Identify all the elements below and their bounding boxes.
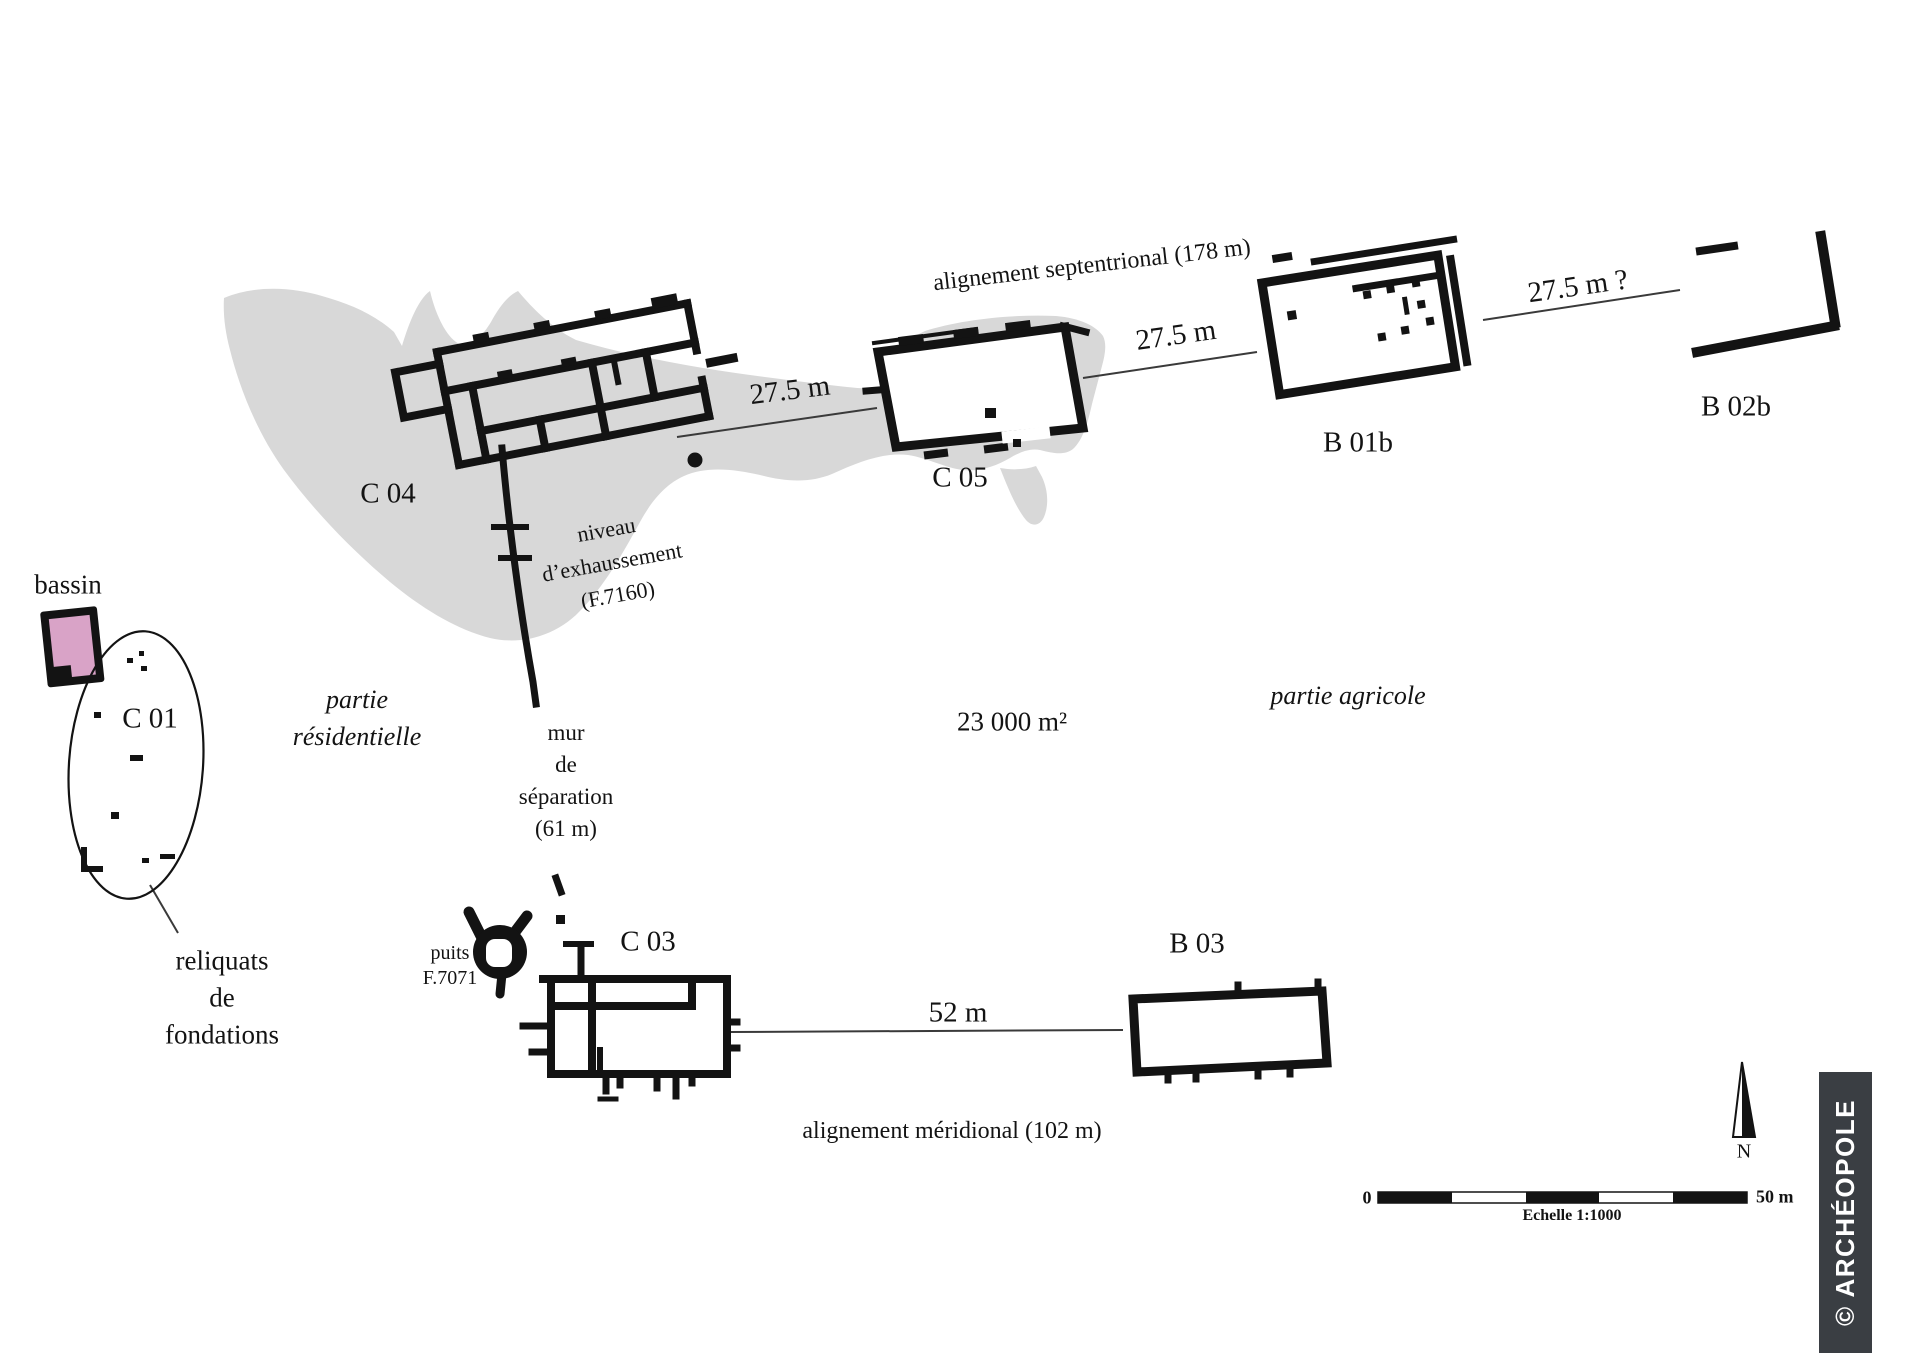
label-basin: bassin [34, 569, 102, 600]
survey-point-dot [688, 453, 703, 468]
label-foundation-remnants: reliquats de fondations [165, 943, 279, 1054]
building-b01b-walls [1258, 227, 1473, 395]
label-compass-north: N [1737, 1141, 1751, 1164]
scale-bar-start-label: 0 [1363, 1188, 1372, 1209]
b01b-pillar-bases [1272, 232, 1436, 356]
alignment-line-c05-b01b [1083, 352, 1257, 378]
label-building-c04: C 04 [360, 477, 416, 510]
scale-bar-end-label: 50 m [1756, 1187, 1794, 1208]
label-building-b03: B 03 [1169, 927, 1225, 960]
label-building-b02b: B 02b [1701, 390, 1771, 423]
scale-bar-caption: Echelle 1:1000 [1522, 1207, 1621, 1225]
label-alignment-south: alignement méridional (102 m) [802, 1118, 1101, 1146]
north-arrow-icon [1733, 1062, 1755, 1137]
building-c03-walls [523, 979, 737, 1099]
label-well: puits F.7071 [423, 941, 478, 991]
label-building-b01b: B 01b [1323, 426, 1393, 459]
leader-line-foundations [150, 885, 178, 933]
label-zone-residential: partie résidentielle [293, 681, 422, 755]
label-separation-wall: mur de séparation (61 m) [519, 717, 614, 845]
label-building-c01: C 01 [122, 702, 178, 735]
site-plan-canvas [0, 0, 1920, 1358]
building-b03-walls [1133, 982, 1327, 1080]
label-zone-agricultural: partie agricole [1270, 681, 1425, 711]
label-building-c05: C 05 [932, 461, 988, 494]
label-building-c03: C 03 [620, 925, 676, 958]
scale-bar [1378, 1192, 1747, 1203]
archeopole-watermark-text: © ARCHÉOPOLE [1830, 1099, 1861, 1326]
site-plan: alignement septentrional (178 m) 27.5 m … [0, 0, 1920, 1358]
basin-icon [40, 606, 105, 688]
label-distance-c03-b03: 52 m [929, 996, 988, 1029]
foundation-remnant-marks [94, 651, 175, 863]
archeopole-watermark: © ARCHÉOPOLE [1819, 1072, 1872, 1353]
alignment-line-c03-b03 [730, 1030, 1123, 1032]
well-icon [469, 912, 527, 994]
label-area: 23 000 m² [957, 706, 1067, 737]
building-b02b-walls [1697, 236, 1835, 352]
